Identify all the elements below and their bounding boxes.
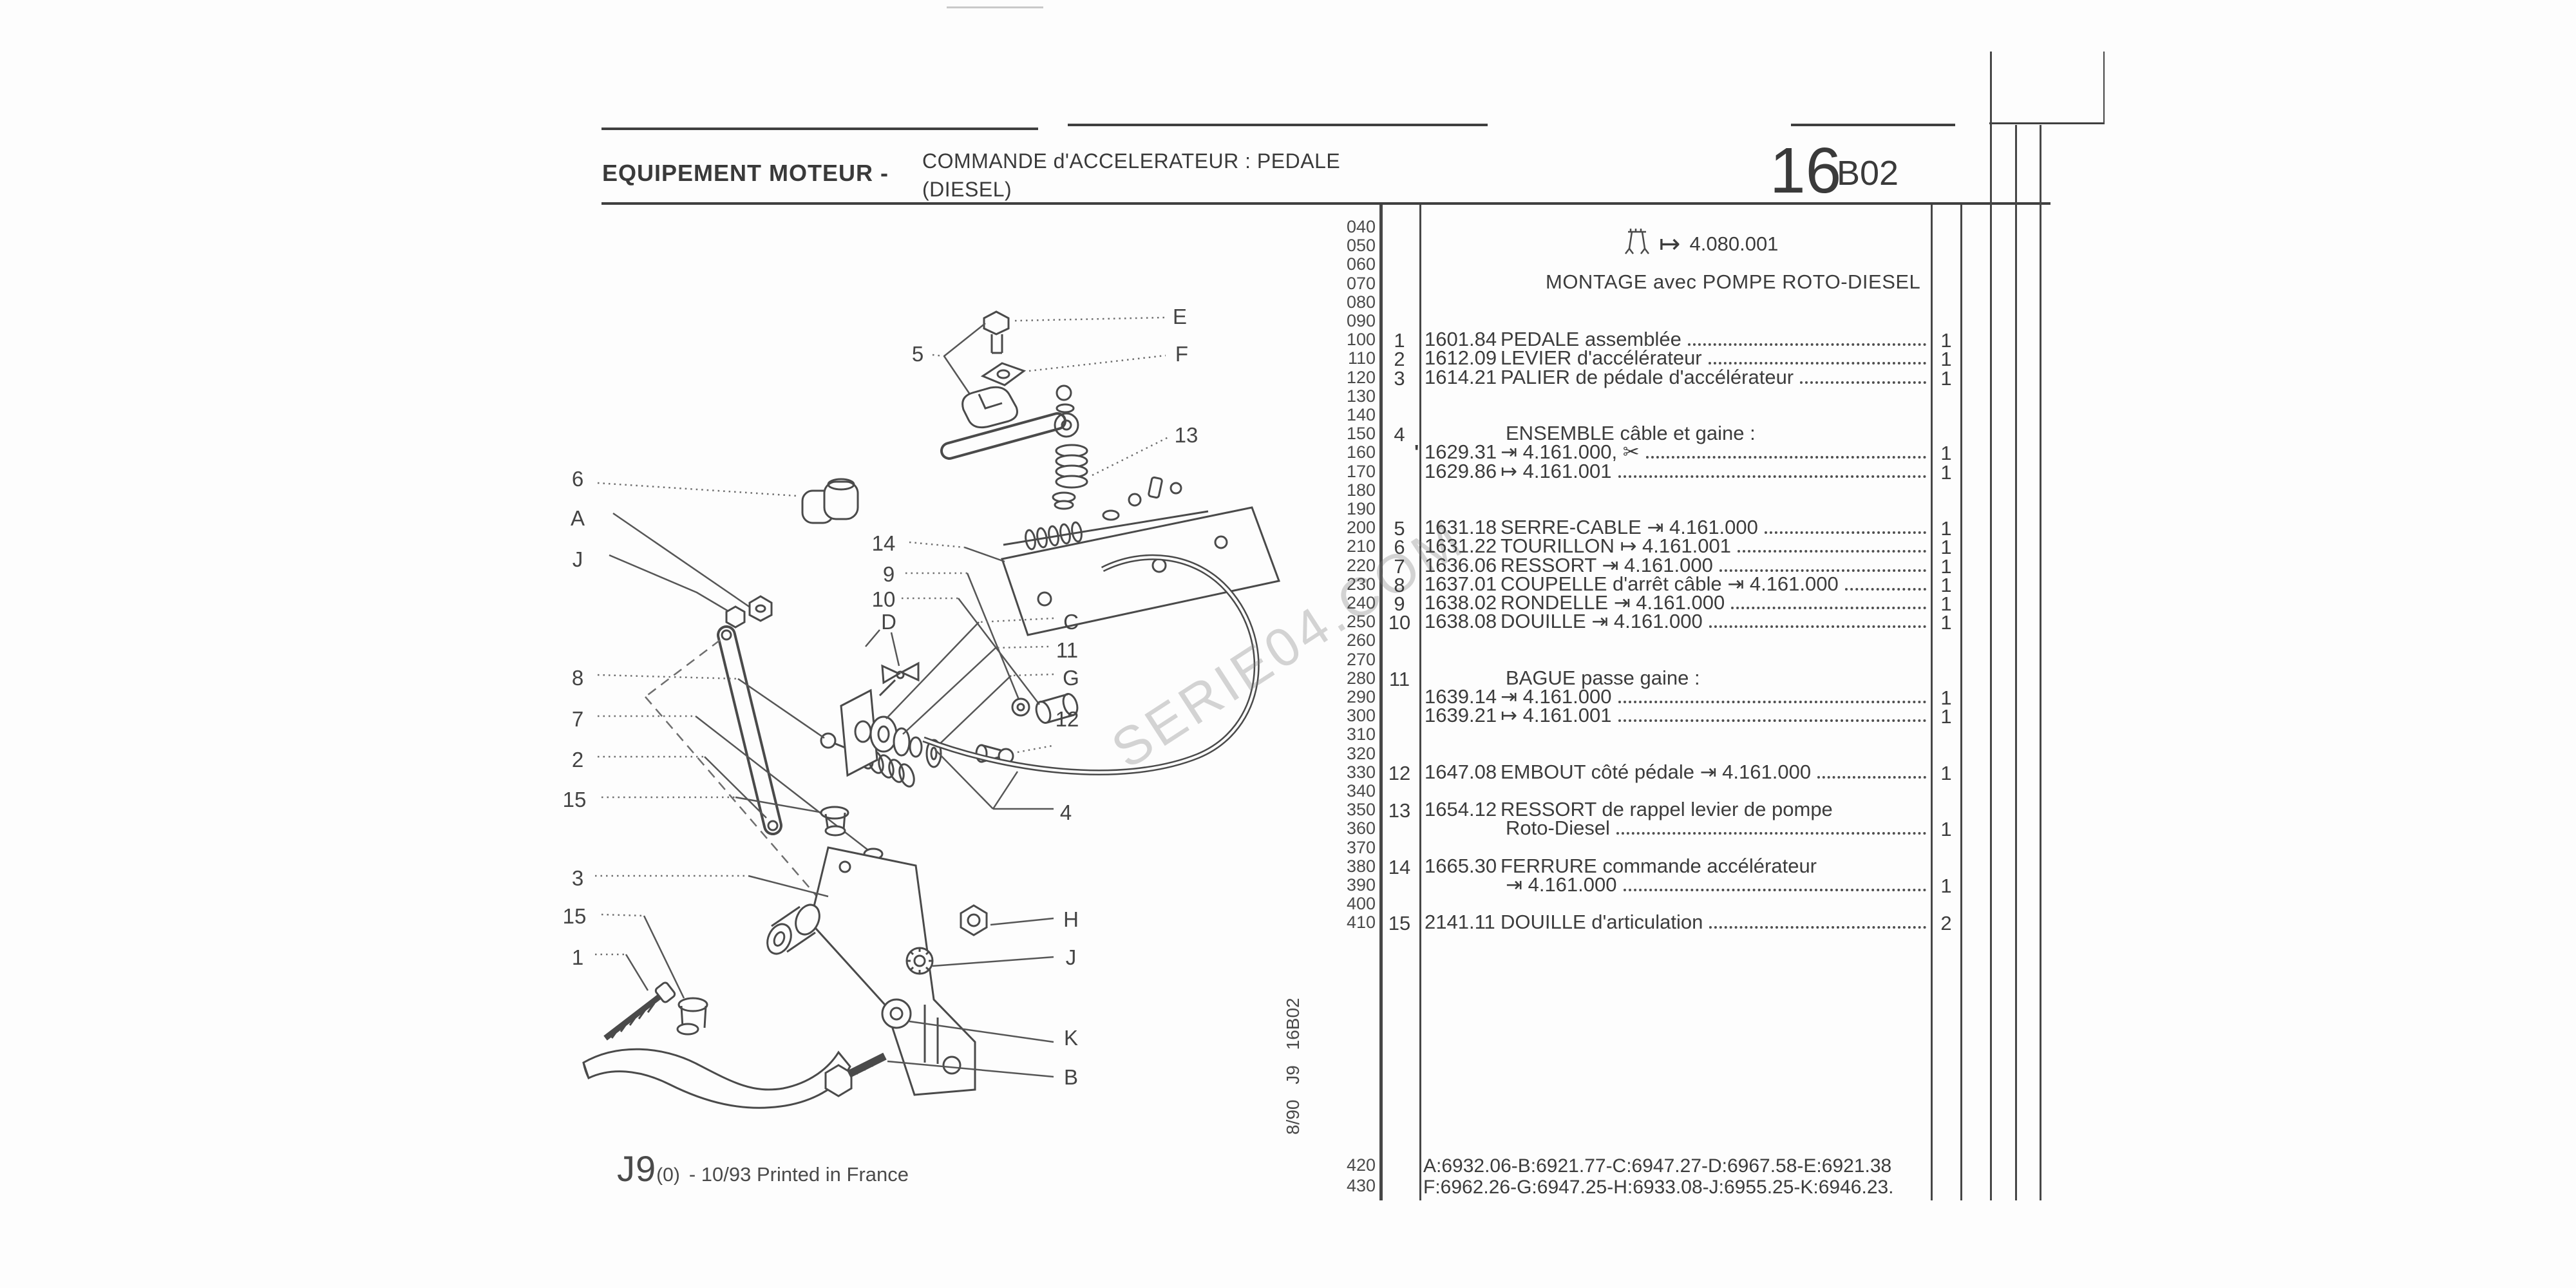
callout-label-C: C xyxy=(1063,610,1079,634)
margin-row-number: 150 xyxy=(1338,424,1376,444)
callout-label-3: 3 xyxy=(572,866,583,891)
table-row: Roto-Diesel xyxy=(1506,817,1929,840)
margin-row-number: 120 xyxy=(1338,368,1376,388)
quantity: 1 xyxy=(1932,762,1960,785)
variant-codes-line2: F:6962.26-G:6947.25-H:6933.08-J:6955.25-… xyxy=(1423,1177,1894,1198)
margin-row-number: 240 xyxy=(1338,593,1376,613)
margin-row-number: 140 xyxy=(1338,405,1376,425)
imprint: J9 (0) - 10/93 Printed in France xyxy=(617,1148,909,1189)
margin-row-number: 390 xyxy=(1338,875,1376,895)
margin-row-number: 210 xyxy=(1338,536,1376,556)
margin-row-number: 190 xyxy=(1338,499,1376,519)
dot-leader xyxy=(1709,362,1926,365)
imprint-text: - 10/93 Printed in France xyxy=(689,1163,909,1186)
part-description: DOUILLE d'articulation xyxy=(1501,911,1703,934)
item-number: 15 xyxy=(1381,912,1418,935)
callout-label-15-upper: 15 xyxy=(563,788,587,812)
margin-row-number: 380 xyxy=(1338,857,1376,876)
variant-codes-line1: A:6932.06-B:6921.77-C:6947.27-D:6967.58-… xyxy=(1423,1155,1891,1177)
quantity: 1 xyxy=(1932,367,1960,390)
dot-leader xyxy=(1618,701,1927,703)
margin-row-number: 280 xyxy=(1338,668,1376,688)
dot-leader xyxy=(1709,926,1926,929)
dot-leader xyxy=(1709,625,1926,628)
dot-leader xyxy=(1618,719,1927,722)
margin-row-number: 100 xyxy=(1338,330,1376,350)
margin-row-number: 260 xyxy=(1338,630,1376,650)
callout-label-E: E xyxy=(1173,305,1187,329)
dot-leader xyxy=(1800,381,1926,384)
margin-row-number: 410 xyxy=(1338,913,1376,933)
item-number: 4 xyxy=(1381,423,1418,446)
margin-row-number: 320 xyxy=(1338,744,1376,764)
margin-row-number: 310 xyxy=(1338,724,1376,744)
table-row: ⇥ 4.161.000 xyxy=(1506,873,1929,896)
margin-row-number: 400 xyxy=(1338,894,1376,914)
dot-leader xyxy=(1817,776,1926,779)
margin-row-number: 340 xyxy=(1338,781,1376,801)
callout-label-10: 10 xyxy=(872,587,896,612)
callout-label-4: 4 xyxy=(1060,800,1072,825)
margin-row-number: 420 xyxy=(1338,1155,1376,1175)
callout-label-15-lower: 15 xyxy=(563,904,587,929)
item-number: 11 xyxy=(1381,668,1418,691)
table-row: 1614.21PALIER de pédale d'accélérateur xyxy=(1425,366,1929,389)
part-reference: 1639.21 xyxy=(1425,704,1501,727)
margin-row-number: 040 xyxy=(1338,217,1376,237)
part-reference: 1654.12 xyxy=(1425,798,1501,821)
margin-row-number: 060 xyxy=(1338,254,1376,274)
margin-row-number: 170 xyxy=(1338,462,1376,482)
dot-leader xyxy=(1845,588,1926,591)
margin-row-number: 130 xyxy=(1338,386,1376,406)
margin-row-number: 070 xyxy=(1338,274,1376,294)
quantity: 1 xyxy=(1932,875,1960,898)
callout-label-D: D xyxy=(881,610,896,634)
quantity: 1 xyxy=(1932,611,1960,634)
dot-leader xyxy=(1765,531,1926,534)
item-number: 14 xyxy=(1381,856,1418,879)
margin-row-number: 430 xyxy=(1338,1176,1376,1196)
margin-row-number: 330 xyxy=(1338,762,1376,782)
margin-row-number: 220 xyxy=(1338,556,1376,576)
margin-row-number: 160 xyxy=(1338,442,1376,462)
margin-row-number: 300 xyxy=(1338,706,1376,726)
side-note-vertical: 8/90 J9 16B02 xyxy=(1283,998,1303,1135)
part-description: ↦ 4.161.001 xyxy=(1501,460,1612,483)
callout-label-J-lower: J xyxy=(1066,945,1077,970)
callout-label-A: A xyxy=(571,506,585,531)
part-description: EMBOUT côté pédale ⇥ 4.161.000 xyxy=(1501,761,1811,784)
table-row: 1638.08DOUILLE ⇥ 4.161.000 xyxy=(1425,610,1929,633)
dot-leader xyxy=(1731,607,1926,609)
dot-leader xyxy=(1624,889,1927,891)
part-reference: 1614.21 xyxy=(1425,366,1501,389)
margin-row-number: 370 xyxy=(1338,838,1376,858)
callout-label-K: K xyxy=(1064,1026,1078,1050)
callout-label-9: 9 xyxy=(883,562,895,587)
part-description: PALIER de pédale d'accélérateur xyxy=(1501,366,1794,389)
callout-label-13: 13 xyxy=(1175,423,1198,448)
callout-label-7: 7 xyxy=(572,707,583,732)
margin-row-number: 350 xyxy=(1338,800,1376,820)
margin-row-number: 080 xyxy=(1338,292,1376,312)
quantity: 1 xyxy=(1932,705,1960,728)
dot-leader xyxy=(1688,343,1926,346)
imprint-index: (0) xyxy=(656,1164,680,1186)
table-row: 1647.08EMBOUT côté pédale ⇥ 4.161.000 xyxy=(1425,761,1929,784)
dot-leader xyxy=(1616,832,1926,835)
catalog-page: EQUIPEMENT MOTEUR - COMMANDE d'ACCELERAT… xyxy=(0,0,2576,1288)
item-number: 13 xyxy=(1381,799,1418,822)
table-row: 2141.11DOUILLE d'articulation xyxy=(1425,911,1929,934)
dot-leader xyxy=(1618,475,1927,478)
callout-label-1: 1 xyxy=(572,945,583,970)
quantity: 1 xyxy=(1932,461,1960,484)
callout-label-2: 2 xyxy=(572,748,583,772)
quantity: 1 xyxy=(1932,818,1960,841)
callout-label-H: H xyxy=(1063,907,1079,932)
callout-label-F: F xyxy=(1175,342,1188,366)
margin-row-number: 090 xyxy=(1338,311,1376,331)
callout-label-G: G xyxy=(1063,666,1079,690)
item-number: 10 xyxy=(1381,611,1418,634)
dot-leader xyxy=(1738,550,1926,553)
part-description: Roto-Diesel xyxy=(1506,817,1610,840)
margin-row-number: 200 xyxy=(1338,518,1376,538)
margin-row-number: 290 xyxy=(1338,687,1376,707)
part-reference: 2141.11 xyxy=(1425,911,1501,934)
part-reference: 1629.86 xyxy=(1425,460,1501,483)
callout-label-11: 11 xyxy=(1056,638,1078,663)
part-reference: 1647.08 xyxy=(1425,761,1501,784)
margin-row-number: 360 xyxy=(1338,819,1376,838)
part-reference: 1665.30 xyxy=(1425,855,1501,878)
callout-label-8: 8 xyxy=(572,666,583,690)
callout-label-5: 5 xyxy=(912,342,923,366)
margin-row-number: 050 xyxy=(1338,236,1376,256)
part-description: DOUILLE ⇥ 4.161.000 xyxy=(1501,610,1703,633)
item-number: 3 xyxy=(1381,367,1418,390)
margin-row-number: 230 xyxy=(1338,574,1376,594)
margin-row-number: 110 xyxy=(1338,348,1376,368)
imprint-model: J9 xyxy=(617,1148,656,1189)
callout-label-B: B xyxy=(1064,1065,1078,1090)
margin-row-number: 250 xyxy=(1338,612,1376,632)
item-number: 12 xyxy=(1381,762,1418,785)
table-row: 1639.21↦ 4.161.001 xyxy=(1425,704,1929,727)
quantity: 2 xyxy=(1932,912,1960,935)
callout-label-14: 14 xyxy=(872,531,896,556)
part-description: ⇥ 4.161.000 xyxy=(1506,873,1617,896)
dot-leader xyxy=(1719,569,1926,572)
callout-label-J-upper: J xyxy=(573,547,583,572)
margin-row-number: 180 xyxy=(1338,480,1376,500)
callout-label-6: 6 xyxy=(572,467,583,491)
table-row: 1629.86↦ 4.161.001 xyxy=(1425,460,1929,483)
margin-row-number: 270 xyxy=(1338,650,1376,670)
dot-leader xyxy=(1646,456,1926,459)
part-reference: 1638.08 xyxy=(1425,610,1501,633)
callout-label-12: 12 xyxy=(1056,707,1079,732)
part-description: ↦ 4.161.001 xyxy=(1501,704,1612,727)
